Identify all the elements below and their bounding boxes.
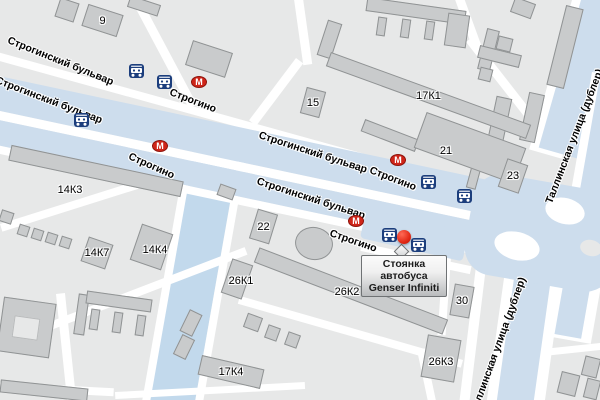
bus-stop-icon[interactable] — [157, 75, 172, 89]
building — [135, 314, 147, 336]
building-label: 14К7 — [85, 247, 110, 259]
callout-line2: Genser Infiniti — [365, 282, 443, 294]
building — [400, 18, 412, 38]
building — [264, 324, 281, 342]
building-label: 9 — [99, 15, 105, 27]
building — [284, 331, 301, 349]
building — [478, 67, 494, 83]
bus-stop-icon[interactable] — [382, 228, 397, 242]
building-label: 21 — [440, 145, 452, 157]
bus-stop-icon[interactable] — [129, 64, 144, 78]
bus-stop-icon[interactable] — [421, 175, 436, 189]
building — [0, 379, 88, 400]
bus-stop-icon[interactable] — [74, 113, 89, 127]
metro-icon[interactable]: М — [191, 76, 207, 88]
building — [583, 378, 600, 400]
building-label: 30 — [456, 295, 468, 307]
building-label: 22 — [257, 221, 269, 233]
building — [59, 236, 73, 250]
building-label: 26К1 — [229, 275, 254, 287]
building — [444, 13, 470, 49]
building-label: 15 — [307, 97, 319, 109]
map-marker[interactable] — [397, 230, 411, 244]
building — [243, 313, 263, 333]
building-label: 23 — [507, 170, 519, 182]
building — [185, 40, 233, 78]
road — [293, 0, 312, 65]
bus-stop-icon[interactable] — [457, 189, 472, 203]
building — [292, 224, 335, 263]
building — [557, 371, 581, 397]
building — [31, 228, 45, 242]
building-label: 17К1 — [416, 90, 441, 102]
marker-callout[interactable]: Стоянка автобуса Genser Infiniti — [361, 255, 447, 297]
building — [376, 16, 388, 36]
road — [56, 293, 77, 400]
building — [112, 311, 124, 333]
building-label: 26К2 — [335, 286, 360, 298]
metro-icon[interactable]: М — [390, 154, 406, 166]
building-label: 14К3 — [58, 184, 83, 196]
building — [361, 119, 420, 152]
building — [510, 0, 536, 19]
building — [54, 0, 79, 23]
building — [424, 20, 436, 40]
building — [581, 355, 600, 378]
building — [45, 232, 59, 246]
building-label: 26К3 — [429, 356, 454, 368]
road — [115, 382, 305, 399]
metro-icon[interactable]: М — [348, 215, 364, 227]
bus-stop-icon[interactable] — [411, 238, 426, 252]
road — [249, 58, 303, 126]
building — [89, 308, 101, 330]
building — [17, 224, 31, 238]
callout-line1: Стоянка автобуса — [365, 258, 443, 282]
building-courtyard — [12, 315, 41, 340]
metro-icon[interactable]: М — [152, 140, 168, 152]
map-canvas[interactable]: 91517К1212314К314К414К72226К126К23026К31… — [0, 0, 600, 400]
building-label: 17К4 — [219, 366, 244, 378]
building-label: 14К4 — [143, 244, 168, 256]
